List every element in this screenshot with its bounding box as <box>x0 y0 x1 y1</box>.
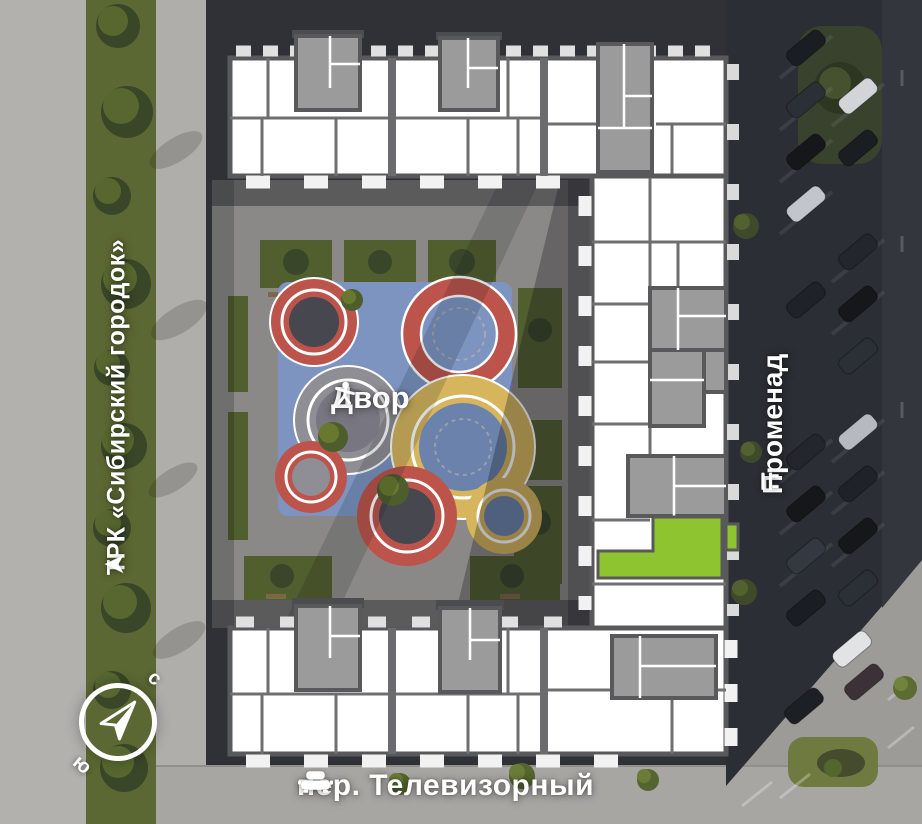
person-playing-icon <box>331 380 358 407</box>
site-plan-view: Двор пер. Телевизорный ТРК «Сибирский го… <box>0 0 922 824</box>
street-label: пер. Телевизорный <box>297 769 594 803</box>
right-road <box>882 0 922 608</box>
direction-arrow-icon <box>103 553 125 575</box>
courtyard-label: Двор <box>331 380 410 416</box>
promenade-label: Променад <box>757 354 789 495</box>
selected-apartment-balcony <box>726 524 738 550</box>
mall-label: ТРК «Сибирский городок» <box>103 239 132 575</box>
street-label-text: пер. Телевизорный <box>297 769 594 803</box>
mall-label-text: ТРК «Сибирский городок» <box>103 239 132 575</box>
bench-icon <box>757 468 783 494</box>
building-top[interactable] <box>230 30 726 182</box>
car-icon <box>297 769 334 794</box>
